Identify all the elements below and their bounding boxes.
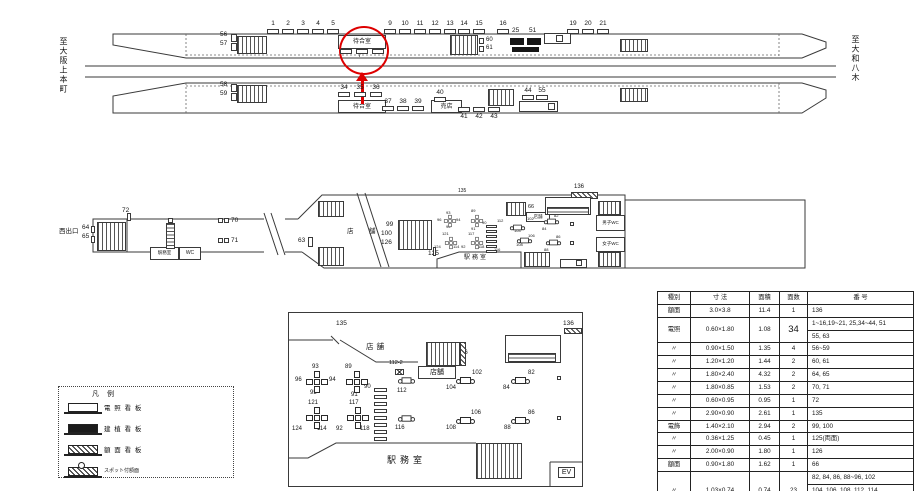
pillar-board (321, 379, 328, 385)
cell-numbers: 56~59 (808, 343, 914, 356)
board-number-label: 104 (446, 385, 456, 391)
board-number-label: 135 (336, 321, 347, 328)
pillar-board (355, 415, 361, 421)
cell-count: 1 (780, 304, 808, 317)
cell-area: 1.80 (750, 446, 780, 459)
stairs-icon (426, 342, 460, 366)
pillar-board (314, 386, 320, 393)
signboard-box (91, 236, 95, 243)
cell-type: 〃 (658, 382, 691, 395)
ev-icon (548, 103, 555, 110)
col-numbers: 番 号 (808, 292, 914, 305)
ev-icon (576, 260, 582, 266)
legend-item-label: 電 照 看 板 (104, 406, 142, 413)
board-number-label: 2 (286, 21, 290, 28)
signboard-box (582, 29, 594, 34)
double-sided-board (460, 417, 471, 424)
destination-right-label: 至大和八木 (850, 35, 861, 83)
board-number-label: 店舗 (366, 343, 387, 351)
ticket-gate-bar (374, 402, 387, 406)
table-row: 〃0.90×1.501.35456~59 (658, 343, 914, 356)
board-number-label: 55 (538, 88, 545, 95)
cell-numbers: 99, 100 (808, 420, 914, 433)
pillar-board-cluster (445, 237, 457, 249)
signboard-box (231, 34, 237, 42)
signboard-box (354, 92, 366, 97)
pillar-board (471, 219, 475, 222)
board-number-label: 126 (381, 240, 392, 247)
cell-count: 2 (780, 369, 808, 382)
cell-size: 1.03×0.74 (691, 472, 750, 491)
table-row: 電照0.60×1.801.08341~16,19~21, 25,34~44, 5… (658, 317, 914, 330)
pillar (557, 376, 561, 380)
signboard-box (497, 29, 509, 34)
pillar-board (306, 379, 313, 385)
pillar-board (346, 379, 353, 385)
cell-size: 0.36×1.25 (691, 433, 750, 446)
board-number-label: 12 (431, 21, 438, 28)
pillar-board-cluster (346, 371, 368, 393)
board-number-label: 34 (340, 85, 347, 92)
col-count: 面数 (780, 292, 808, 305)
signboard-box (127, 213, 131, 221)
pillar (570, 222, 574, 226)
board-number-label: 96 (295, 377, 302, 383)
board-number-label: 駅務室 (387, 456, 426, 465)
board-number-label: 108 (516, 243, 523, 247)
signboard-box (473, 29, 485, 34)
table-row: 〃1.80×0.851.53270, 71 (658, 382, 914, 395)
signboard-box (168, 218, 173, 223)
double-sided-board (402, 377, 412, 383)
board-number-label: 38 (399, 99, 406, 106)
mens-wc-room: 男子WC (596, 215, 625, 231)
signboard-box (382, 106, 394, 111)
board-number-label: 124 (292, 426, 302, 432)
ticket-gate-bar (374, 423, 387, 427)
pillar-board (354, 379, 360, 385)
pillar-board (475, 219, 478, 222)
signboard-box (370, 92, 382, 97)
stairs-icon (318, 201, 344, 217)
table-row: 〃0.60×0.950.95172 (658, 394, 914, 407)
lighted-signboard-icon (68, 403, 98, 412)
table-row: 額面3.0×3.811.41136 (658, 304, 914, 317)
board-number-label: 13 (446, 21, 453, 28)
stairs-icon (488, 89, 514, 106)
board-number-label: 100 (381, 231, 392, 238)
cell-area: 0.74 (750, 472, 780, 491)
table-header-row: 種別 寸 法 面積 面数 番 号 (658, 292, 914, 305)
ticket-gate-bar (486, 230, 497, 233)
pillar-board (453, 241, 457, 244)
pillar-board (475, 223, 478, 227)
board-number-label: 99 (386, 222, 393, 229)
cell-size: 1.80×2.40 (691, 369, 750, 382)
double-sided-board (402, 415, 412, 421)
pillar-board (362, 415, 369, 421)
table-row: 〃2.90×0.902.611135 (658, 407, 914, 420)
board-number-label: 117 (349, 400, 359, 406)
stairs-icon (476, 443, 522, 479)
board-number-label: 21 (599, 21, 606, 28)
table-row: 〃1.80×2.404.32264, 65 (658, 369, 914, 382)
board-number-label: 4 (316, 21, 320, 28)
board-number-label: 106 (528, 234, 535, 238)
cell-numbers: 60, 61 (808, 356, 914, 369)
corridor-stairs-icon (166, 223, 175, 249)
table-body: 額面3.0×3.811.41136電照0.60×1.801.08341~16,1… (658, 304, 914, 491)
standing-signboard-icon (68, 424, 98, 433)
pillar-board (314, 415, 320, 421)
cell-area: 1.53 (750, 382, 780, 395)
board-number-label: 121 (308, 400, 318, 406)
pillar-board (449, 237, 452, 241)
signboard-box (312, 29, 324, 34)
ticket-gate-bar (486, 240, 497, 243)
signboard-box (282, 29, 294, 34)
table-row: 〃1.20×1.201.44260, 61 (658, 356, 914, 369)
pillar-board-cluster (347, 407, 369, 429)
cell-numbers: 136 (808, 304, 914, 317)
pillar-board (475, 215, 478, 219)
board-number-label: 11 (417, 21, 424, 28)
cell-area: 4.32 (750, 369, 780, 382)
pillar-board (448, 219, 451, 222)
cell-numbers: 70, 71 (808, 382, 914, 395)
cell-count: 1 (780, 459, 808, 472)
face-panel-icon-label: 額 面 看 板 (104, 448, 142, 455)
ticket-gate-bar (374, 395, 387, 399)
signboard-box (479, 46, 484, 52)
cell-numbers: 55, 63 (808, 330, 914, 343)
cell-type: 〃 (658, 356, 691, 369)
cell-size: 3.0×3.8 (691, 304, 750, 317)
signboard-box (384, 29, 396, 34)
board-number-label: 92 (336, 426, 343, 432)
table-row: 電飾1.40×2.102.94299, 100 (658, 420, 914, 433)
cell-area: 0.95 (750, 394, 780, 407)
board-number-label: 86 (556, 235, 560, 239)
pillar-board (448, 215, 451, 219)
signboard-box (458, 29, 470, 34)
pillar-board (314, 422, 320, 429)
board-number-label: 60 (486, 37, 493, 43)
pillar-board (449, 245, 452, 249)
board-number-label: 39 (414, 99, 421, 106)
spot-face-signboard-icon (68, 467, 98, 476)
board-number-label: 10 (401, 21, 408, 28)
col-type: 種別 (658, 292, 691, 305)
board-number-label: 136 (563, 321, 574, 328)
cell-size: 2.00×0.90 (691, 446, 750, 459)
board-number-label: 86 (528, 410, 535, 416)
board-number-label: 89 (471, 209, 475, 213)
escalator-icon (547, 207, 589, 215)
board-number-label: 106 (471, 410, 481, 416)
stairs-icon (318, 247, 344, 266)
board-number-label: 44 (524, 88, 531, 95)
board-number-label: 117 (468, 232, 474, 236)
board-number-label: 66 (528, 205, 534, 211)
ticket-gate-bar (374, 430, 387, 434)
signboard-box (399, 29, 411, 34)
double-sided-board (460, 377, 471, 384)
board-number-label: 63 (298, 238, 305, 245)
board-number-label: 112 (497, 219, 503, 223)
gate-icon (218, 218, 223, 223)
cell-count: 23 (780, 472, 808, 491)
signboard-box (597, 29, 609, 34)
womens-wc-room: 女子WC (596, 237, 625, 252)
table-row: 〃1.03×0.740.742382, 84, 86, 88~96, 102 (658, 472, 914, 485)
board-number-label: 121 (442, 232, 449, 236)
board-number-label: 40 (436, 90, 443, 97)
signboard-box (231, 43, 237, 51)
cell-numbers: 1~16,19~21, 25,34~44, 51 (808, 317, 914, 330)
cell-size: 2.90×0.90 (691, 407, 750, 420)
board-number-label: 57 (220, 41, 227, 48)
highlight-arrow-head (356, 72, 368, 81)
board-number-label: 5 (331, 21, 335, 28)
ticket-gate-bar (374, 409, 387, 413)
cell-size: 1.40×2.10 (691, 420, 750, 433)
board-number-label: 96 (437, 218, 441, 222)
board-number-label: 112 (397, 388, 407, 394)
col-area: 面積 (750, 292, 780, 305)
pillar-board (314, 407, 320, 414)
signboard-box (479, 38, 484, 44)
cell-numbers: 126 (808, 446, 914, 459)
signboard-box (536, 95, 548, 100)
cell-count: 34 (780, 317, 808, 343)
gate-icon (224, 218, 229, 223)
board-number-label: 41 (460, 114, 467, 121)
signboard-box (397, 106, 409, 111)
pillar-board (475, 237, 478, 241)
pillar-board (471, 241, 475, 244)
standing-signboard (512, 47, 539, 52)
cell-type: 〃 (658, 433, 691, 446)
face-signboard-icon (68, 445, 98, 454)
signboard-box (414, 29, 426, 34)
stairs-icon (398, 220, 432, 250)
cell-count: 2 (780, 382, 808, 395)
cell-type: 電飾 (658, 420, 691, 433)
pillar-board-cluster (471, 237, 483, 249)
cell-count: 1 (780, 446, 808, 459)
board-number-label: 59 (220, 91, 227, 98)
signboard-box (231, 93, 237, 101)
signboard-box (356, 49, 368, 54)
board-number-label: 94 (456, 218, 460, 222)
board-number-label: 136 (574, 184, 584, 190)
board-number-label: 84 (503, 385, 510, 391)
signboard-box (91, 226, 95, 233)
destination-left-label: 至大阪上本町 (58, 37, 69, 94)
legend-item-label: 建 植 看 板 (104, 427, 142, 434)
pillar-board (361, 379, 368, 385)
cell-type: 〃 (658, 343, 691, 356)
cell-type: 〃 (658, 472, 691, 491)
board-number-label: 舗 (369, 229, 376, 236)
stairs-icon (598, 201, 621, 215)
cell-type: 電照 (658, 317, 691, 343)
cell-size: 0.60×1.80 (691, 317, 750, 343)
cell-size: 0.60×0.95 (691, 394, 750, 407)
escalator-icon (508, 353, 556, 362)
cell-count: 4 (780, 343, 808, 356)
cell-numbers: 125(両面) (808, 433, 914, 446)
board-number-label: 58 (220, 82, 227, 89)
board-number-label: 35 (356, 85, 363, 92)
pillar-board (355, 422, 361, 429)
board-number-label: 1 (271, 21, 275, 28)
pillar-board (354, 371, 360, 378)
stairs-icon (506, 202, 526, 216)
board-number-label: 94 (329, 377, 336, 383)
board-number-label: 20 (584, 21, 591, 28)
cell-size: 0.90×1.50 (691, 343, 750, 356)
cell-area: 2.94 (750, 420, 780, 433)
ticket-gate-bar (374, 416, 387, 420)
stairs-icon (237, 85, 267, 103)
gate-icon (218, 238, 223, 243)
cell-count: 1 (780, 407, 808, 420)
double-sided-board (547, 219, 556, 225)
board-number-label: 19 (569, 21, 576, 28)
escalator-strip (460, 342, 466, 366)
double-sided-board (515, 377, 526, 384)
station-signboard-map: 至大阪上本町 至大和八木 待合室 待合室 売店 駅務室 WC 店舗 男子WC 女… (0, 0, 919, 491)
board-number-label: 70 (231, 218, 238, 225)
signboard-box (338, 92, 350, 97)
board-number-label: 51 (529, 28, 536, 35)
cell-size: 1.80×0.85 (691, 382, 750, 395)
signboard-box (412, 106, 424, 111)
col-size: 寸 法 (691, 292, 750, 305)
signboard-box (444, 29, 456, 34)
board-number-label: 43 (490, 114, 497, 121)
board-number-label: 116 (395, 425, 405, 431)
cell-type: 額面 (658, 459, 691, 472)
board-number-label: 駅務室 (464, 255, 488, 261)
signboard-box (340, 49, 352, 54)
stairs-icon (598, 252, 621, 267)
board-number-label: 16 (499, 21, 506, 28)
pillar-board (448, 223, 451, 227)
ticket-gate-bar (374, 437, 387, 441)
pillar-board-cluster (471, 215, 483, 227)
pillar-board (475, 241, 478, 244)
board-number-label: 61 (486, 45, 493, 51)
standing-signboard (510, 38, 524, 45)
elevator-room-box (560, 259, 587, 268)
board-number-label: 102 (472, 370, 482, 376)
signboard-box (434, 97, 446, 102)
cell-type: 〃 (658, 369, 691, 382)
table-row: 額面0.90×1.801.62166 (658, 459, 914, 472)
cell-numbers: 66 (808, 459, 914, 472)
board-number-label: 71 (231, 238, 238, 245)
cell-area: 1.44 (750, 356, 780, 369)
stairs-icon (620, 39, 648, 52)
cell-type: 〃 (658, 446, 691, 459)
cell-area: 1.08 (750, 317, 780, 343)
pillar-board (314, 371, 320, 378)
pillar-board-cluster (444, 215, 456, 227)
signboard-box (372, 49, 384, 54)
board-number-label: 92 (461, 245, 465, 249)
cell-area: 11.4 (750, 304, 780, 317)
signboard-box (473, 107, 485, 112)
table-row: 〃2.00×0.901.801126 (658, 446, 914, 459)
ticket-gate-bar (486, 225, 497, 228)
pillar-board (306, 415, 313, 421)
ev-icon (556, 35, 563, 42)
board-number-label: 82 (528, 370, 535, 376)
signboard-box (308, 237, 313, 247)
ticket-gate-bar (486, 250, 497, 253)
signboard-spec-table: 種別 寸 法 面積 面数 番 号 額面3.0×3.811.41136電照0.60… (657, 291, 914, 491)
board-number-label: 36 (372, 85, 379, 92)
cell-count: 2 (780, 356, 808, 369)
double-sided-board (520, 238, 529, 244)
pillar-board (452, 219, 456, 222)
board-number-label: 108 (446, 425, 456, 431)
cell-size: 1.20×1.20 (691, 356, 750, 369)
board-number-label: 42 (475, 114, 482, 121)
double-sided-board (549, 240, 558, 246)
face-signboard-136 (564, 328, 582, 334)
pillar-board-cluster (306, 407, 328, 429)
pillar-board (321, 415, 328, 421)
pillar-board (449, 241, 452, 244)
board-number-label: 25 (512, 28, 519, 35)
pillar-board (475, 245, 478, 249)
signboard-box (488, 107, 500, 112)
legend-title: 凡 例 (92, 391, 117, 398)
cell-numbers: 72 (808, 394, 914, 407)
ticket-gate-bar (486, 245, 497, 248)
legend-item-label: スポット付額面 (104, 469, 139, 474)
pillar (557, 416, 561, 420)
double-sided-board (513, 225, 522, 231)
pillar-board-cluster (306, 371, 328, 393)
signboard-box (433, 247, 436, 256)
board-number-label: 112-2 (389, 361, 403, 367)
pillar-board (354, 386, 360, 393)
signboard-box (297, 29, 309, 34)
board-number-label: 88 (504, 425, 511, 431)
cell-count: 1 (780, 433, 808, 446)
board-number-label: 3 (301, 21, 305, 28)
board-number-label: 65 (82, 234, 89, 241)
pillar-board (347, 415, 354, 421)
stairs-icon (450, 35, 478, 55)
cell-numbers: 64, 65 (808, 369, 914, 382)
board-number-label: 店 (347, 229, 354, 236)
stairs-icon (524, 252, 550, 267)
cell-area: 1.35 (750, 343, 780, 356)
stairs-icon (97, 222, 126, 251)
ticket-gate-bar (374, 388, 387, 392)
board-number-label: 64 (82, 225, 89, 232)
pillar (570, 241, 574, 245)
cell-area: 0.45 (750, 433, 780, 446)
standing-signboard (527, 38, 541, 45)
cell-count: 1 (780, 394, 808, 407)
